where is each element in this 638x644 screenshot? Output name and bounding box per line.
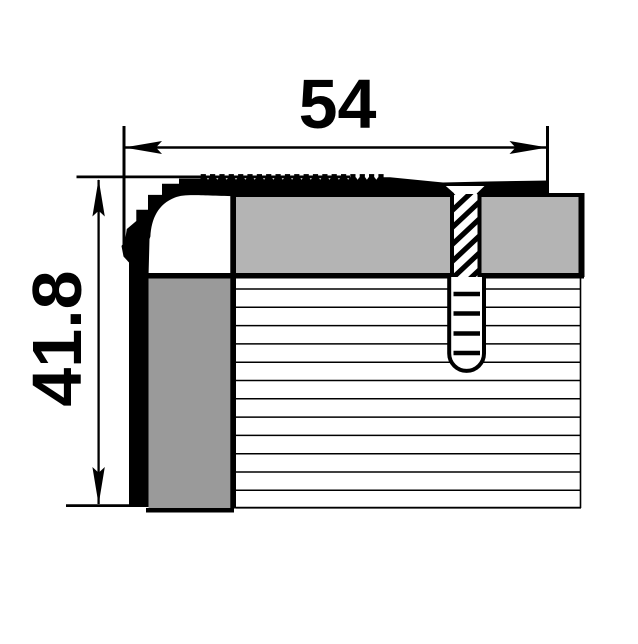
svg-text:41.8: 41.8 <box>18 270 96 406</box>
svg-text:54: 54 <box>299 65 377 143</box>
